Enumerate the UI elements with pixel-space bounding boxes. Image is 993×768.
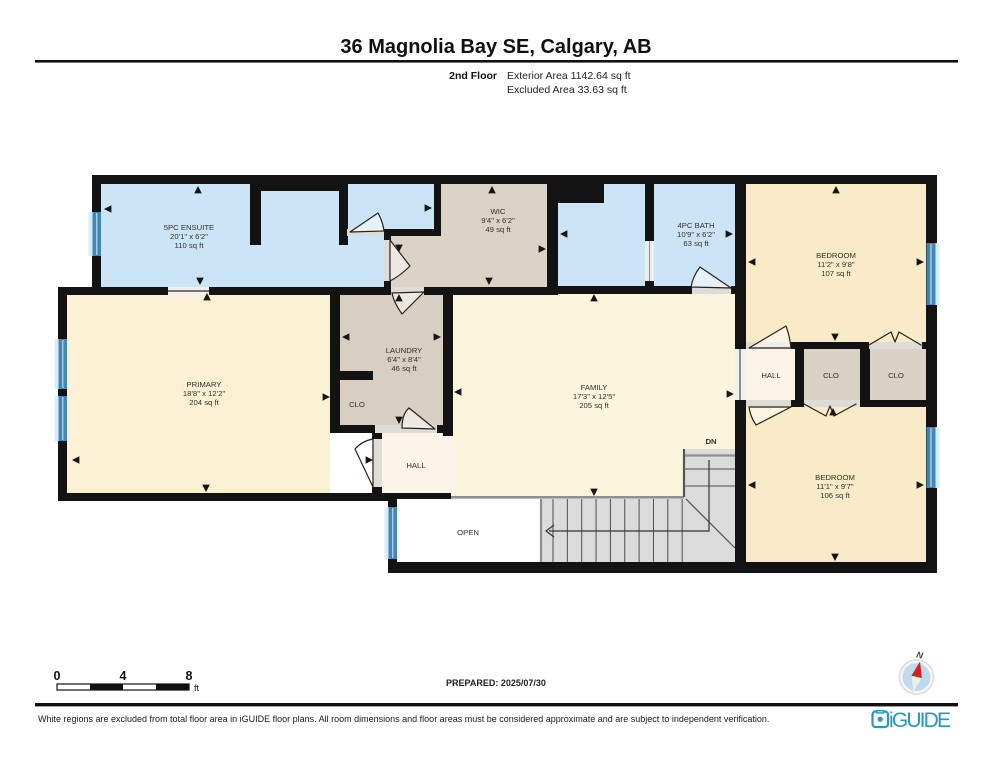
svg-text:9'4" x 6'2": 9'4" x 6'2"	[481, 216, 515, 225]
svg-text:LAUNDRY: LAUNDRY	[386, 346, 423, 355]
svg-text:107 sq ft: 107 sq ft	[821, 269, 851, 278]
svg-text:OPEN: OPEN	[457, 528, 479, 537]
svg-text:11'1" x 9'7": 11'1" x 9'7"	[816, 482, 854, 491]
svg-text:11'2" x 9'8": 11'2" x 9'8"	[817, 260, 855, 269]
svg-text:106 sq ft: 106 sq ft	[820, 491, 850, 500]
svg-text:5PC ENSUITE: 5PC ENSUITE	[164, 223, 214, 232]
svg-text:6'4" x 8'4": 6'4" x 8'4"	[387, 355, 421, 364]
svg-text:0: 0	[54, 669, 61, 683]
svg-text:17'3" x 12'5": 17'3" x 12'5"	[573, 392, 615, 401]
svg-text:46 sq ft: 46 sq ft	[391, 364, 417, 373]
svg-text:FAMILY: FAMILY	[581, 383, 608, 392]
svg-text:iGUIDE: iGUIDE	[889, 709, 951, 732]
svg-text:PRIMARY: PRIMARY	[187, 380, 222, 389]
svg-text:20'1" x 6'2": 20'1" x 6'2"	[170, 232, 208, 241]
svg-text:Excluded Area 33.63 sq ft: Excluded Area 33.63 sq ft	[507, 84, 627, 96]
svg-text:18'8" x 12'2": 18'8" x 12'2"	[183, 389, 225, 398]
svg-text:DN: DN	[705, 437, 717, 446]
svg-text:36 Magnolia Bay SE, Calgary, A: 36 Magnolia Bay SE, Calgary, AB	[340, 36, 651, 58]
svg-text:10'9" x 6'2": 10'9" x 6'2"	[677, 230, 715, 239]
svg-text:49 sq ft: 49 sq ft	[485, 225, 511, 234]
svg-text:Exterior Area 1142.64 sq ft: Exterior Area 1142.64 sq ft	[507, 70, 631, 82]
svg-text:BEDROOM: BEDROOM	[815, 473, 855, 482]
svg-text:63 sq ft: 63 sq ft	[683, 239, 709, 248]
svg-text:WIC: WIC	[491, 207, 506, 216]
svg-text:8: 8	[186, 669, 193, 683]
svg-text:CLO: CLO	[823, 371, 839, 380]
svg-text:White regions are excluded fro: White regions are excluded from total fl…	[38, 714, 769, 724]
svg-text:2nd Floor: 2nd Floor	[449, 70, 497, 82]
svg-text:4: 4	[120, 669, 127, 683]
svg-text:HALL: HALL	[406, 461, 426, 470]
svg-text:205 sq ft: 205 sq ft	[579, 401, 609, 410]
svg-text:PREPARED: 2025/07/30: PREPARED: 2025/07/30	[446, 678, 546, 688]
svg-text:CLO: CLO	[349, 400, 365, 409]
svg-text:110 sq ft: 110 sq ft	[175, 241, 205, 250]
svg-text:204 sq ft: 204 sq ft	[189, 398, 219, 407]
svg-text:CLO: CLO	[888, 371, 904, 380]
svg-text:4PC BATH: 4PC BATH	[677, 221, 714, 230]
svg-text:ft: ft	[194, 683, 200, 693]
svg-text:HALL: HALL	[761, 371, 781, 380]
svg-text:BEDROOM: BEDROOM	[816, 251, 856, 260]
